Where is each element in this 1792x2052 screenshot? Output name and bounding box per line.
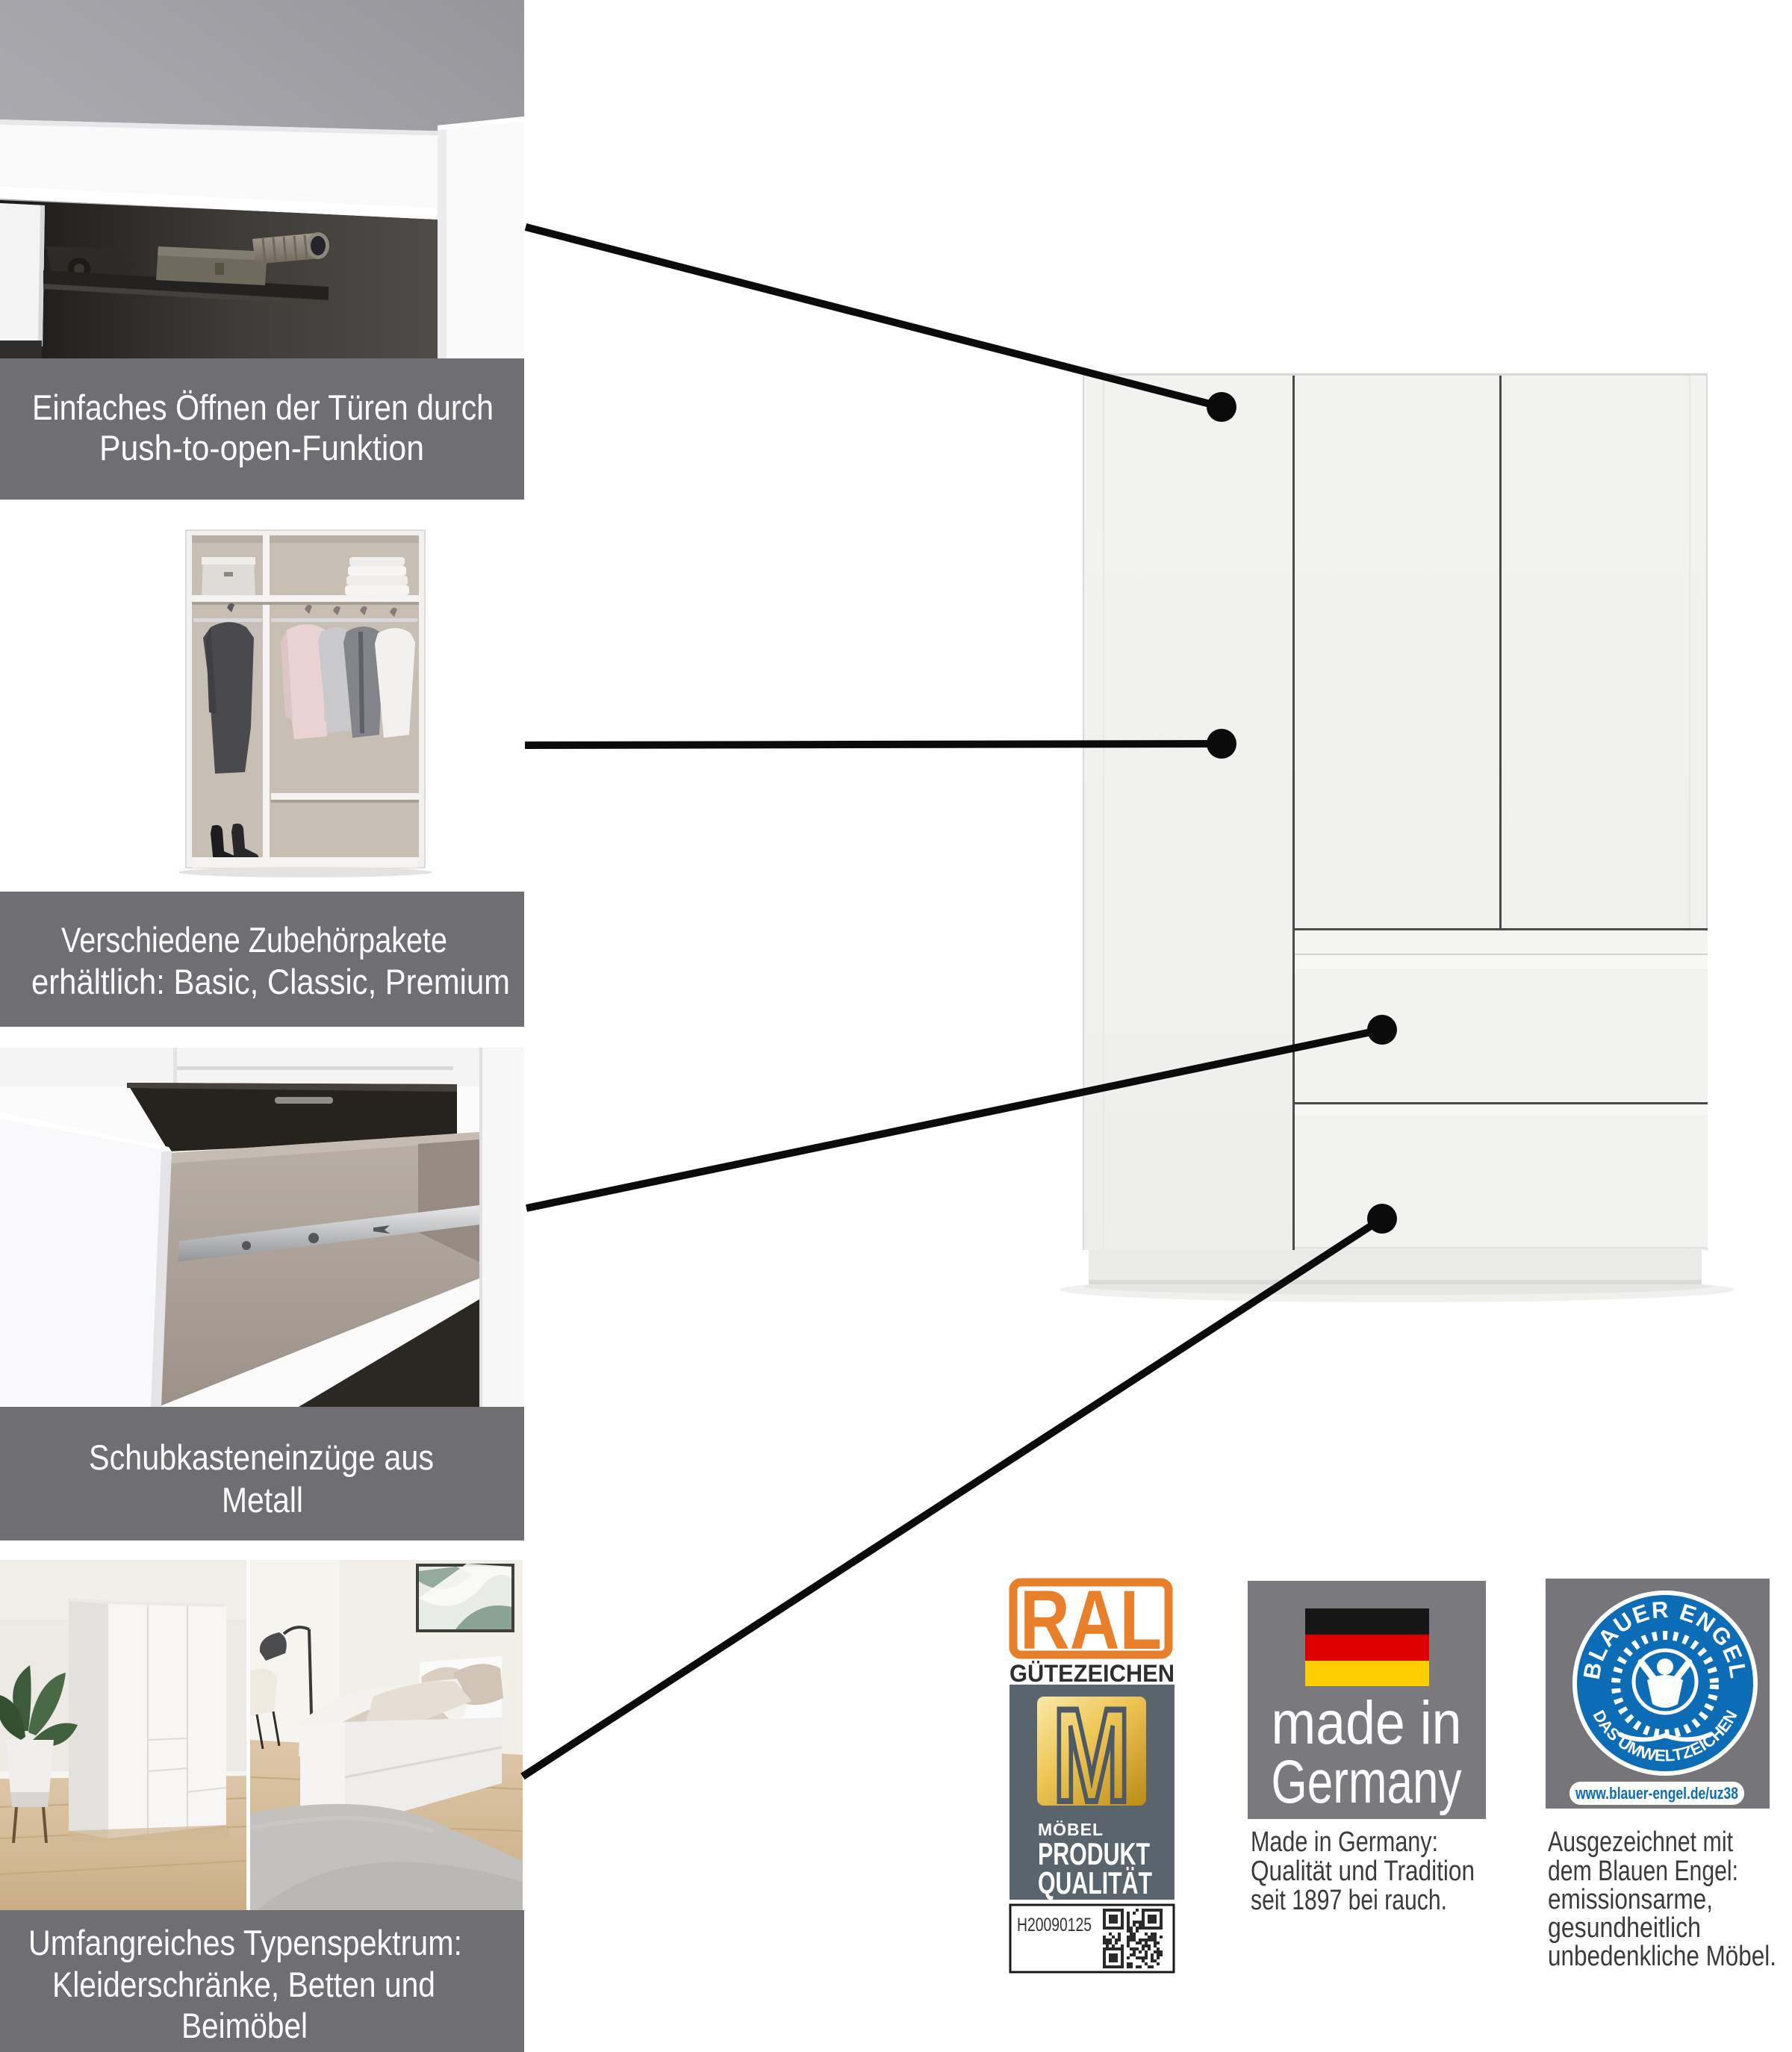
svg-text:M: M [1053, 1681, 1130, 1829]
svg-text:unbedenkliche Möbel.: unbedenkliche Möbel. [1548, 1941, 1776, 1972]
svg-text:Made in Germany:: Made in Germany: [1251, 1826, 1438, 1858]
svg-text:erhältlich: Basic, Classic, Pr: erhältlich: Basic, Classic, Premium [31, 962, 510, 1001]
svg-text:Beimöbel: Beimöbel [181, 2006, 308, 2045]
svg-text:made in: made in [1272, 1689, 1462, 1757]
svg-text:QUALITÄT: QUALITÄT [1038, 1865, 1152, 1900]
svg-text:Kleiderschränke, Betten und: Kleiderschränke, Betten und [52, 1965, 435, 2004]
svg-text:www.blauer-engel.de/uz38: www.blauer-engel.de/uz38 [1575, 1784, 1738, 1803]
svg-text:Push-to-open-Funktion: Push-to-open-Funktion [99, 428, 424, 467]
svg-text:Umfangreiches Typenspektrum:: Umfangreiches Typenspektrum: [28, 1923, 462, 1962]
svg-text:dem Blauen Engel:: dem Blauen Engel: [1548, 1856, 1738, 1887]
svg-text:gesundheitlich: gesundheitlich [1548, 1912, 1701, 1944]
svg-text:Verschiedene Zubehörpakete: Verschiedene Zubehörpakete [61, 920, 447, 960]
svg-text:RAL: RAL [1020, 1573, 1162, 1667]
svg-text:seit 1897 bei rauch.: seit 1897 bei rauch. [1251, 1885, 1447, 1916]
svg-text:emissionsarme,: emissionsarme, [1548, 1884, 1713, 1915]
svg-text:Germany: Germany [1272, 1748, 1462, 1816]
svg-text:Einfaches Öffnen der Türen dur: Einfaches Öffnen der Türen durch [32, 388, 494, 427]
svg-text:Ausgezeichnet mit: Ausgezeichnet mit [1548, 1826, 1733, 1858]
svg-text:Qualität und Tradition: Qualität und Tradition [1251, 1856, 1475, 1887]
svg-text:Metall: Metall [222, 1480, 303, 1520]
svg-text:H20090125: H20090125 [1017, 1915, 1092, 1936]
svg-text:Schubkasteneinzüge aus: Schubkasteneinzüge aus [89, 1437, 434, 1477]
